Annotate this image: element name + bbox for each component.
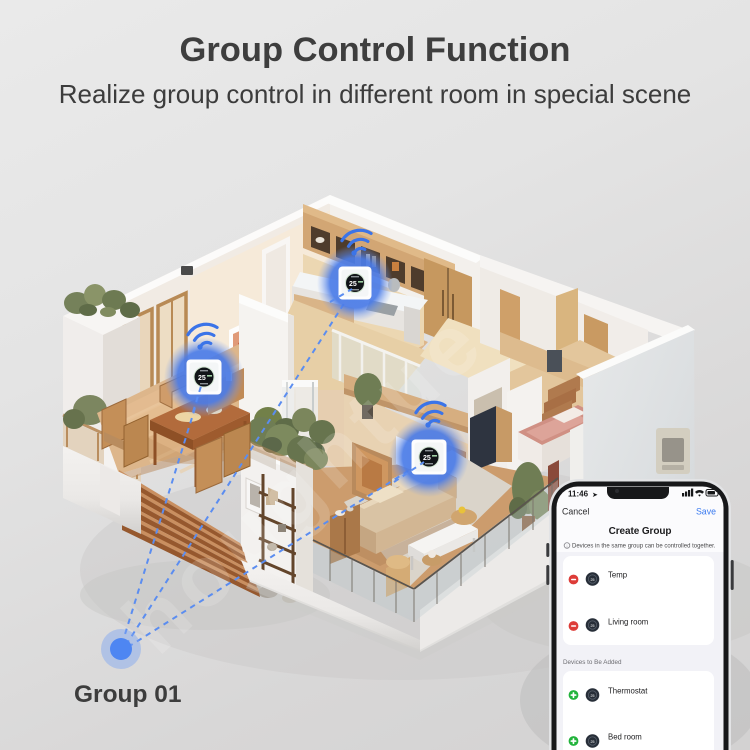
svg-text:i: i (567, 544, 568, 549)
svg-text:25: 25 (591, 624, 595, 628)
svg-text:25: 25 (591, 578, 595, 582)
svg-text:Save: Save (696, 507, 716, 517)
svg-text:➤: ➤ (592, 492, 598, 499)
svg-text:25: 25 (591, 694, 595, 698)
svg-text:Devices to Be Added: Devices to Be Added (563, 659, 622, 666)
svg-text:Thermostat: Thermostat (608, 687, 648, 696)
svg-text:Group Control Function: Group Control Function (180, 31, 571, 69)
svg-text:11:46: 11:46 (568, 490, 589, 499)
svg-text:25: 25 (591, 740, 595, 744)
svg-text:25: 25 (198, 375, 206, 382)
svg-text:Group 01: Group 01 (74, 681, 182, 708)
svg-text:Realize group control in diffe: Realize group control in different room … (59, 79, 692, 109)
svg-text:Cancel: Cancel (562, 507, 589, 517)
svg-text:25: 25 (423, 455, 431, 462)
svg-text:Devices in the same group can: Devices in the same group can be control… (572, 544, 716, 550)
svg-text:Living room: Living room (608, 618, 648, 627)
svg-text:Create Group: Create Group (609, 526, 672, 537)
svg-text:Temp: Temp (608, 571, 628, 580)
svg-text:Bed room: Bed room (608, 733, 642, 742)
svg-text:25: 25 (349, 281, 357, 288)
